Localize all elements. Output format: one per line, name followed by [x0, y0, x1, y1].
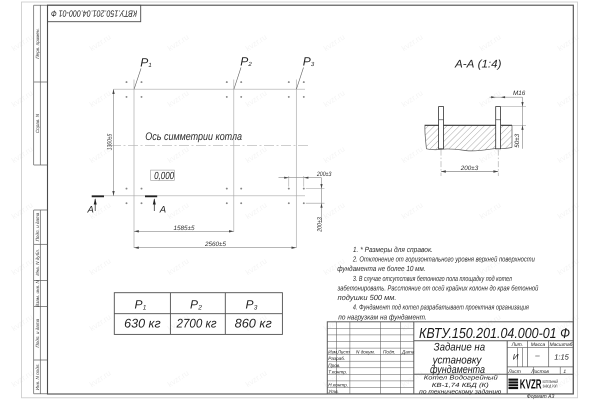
svg-text:забетонировать. Расстояние от: забетонировать. Расстояние от осей крайн…: [337, 283, 539, 292]
svg-text:3. В случае отсутствия бетонно: 3. В случае отсутствия бетонного пола пл…: [353, 274, 513, 283]
svg-text:2: 2: [247, 61, 252, 68]
svg-text:Разраб.: Разраб.: [328, 356, 345, 361]
svg-text:Формат А3: Формат А3: [527, 394, 555, 400]
svg-text:КВТУ.150.201.04.000-01 Ф: КВТУ.150.201.04.000-01 Ф: [419, 326, 570, 342]
svg-text:P: P: [140, 55, 148, 69]
svg-text:Подп. и дата: Подп. и дата: [35, 212, 40, 241]
svg-text:P: P: [135, 297, 143, 311]
svg-text:Дата: Дата: [401, 349, 415, 354]
svg-text:1360±5: 1360±5: [107, 133, 114, 150]
svg-text:ЗАВОД РЭП: ЗАВОД РЭП: [543, 384, 558, 389]
svg-text:Утв.: Утв.: [328, 389, 339, 394]
svg-text:фундамента: фундамента: [430, 364, 485, 376]
svg-text:И: И: [513, 353, 519, 362]
svg-text:Лит.: Лит.: [511, 342, 523, 348]
svg-text:Н.контр.: Н.контр.: [328, 382, 348, 387]
svg-text:1. * Размеры для справок.: 1. * Размеры для справок.: [353, 245, 433, 254]
svg-text:–: –: [534, 351, 540, 360]
svg-text:Справ. N: Справ. N: [35, 113, 40, 133]
svg-text:860 кг: 860 кг: [235, 316, 272, 330]
svg-text:3: 3: [254, 305, 258, 312]
svg-text:P: P: [246, 297, 254, 311]
svg-text:КВ-1,74 КБД (К): КВ-1,74 КБД (К): [432, 382, 489, 389]
svg-text:2: 2: [197, 305, 202, 312]
svg-text:1:15: 1:15: [554, 353, 569, 362]
svg-text:по нагрузкам на фундамент.: по нагрузкам на фундамент.: [338, 312, 426, 321]
svg-text:Взам. инв. N: Взам. инв. N: [35, 279, 40, 306]
svg-text:P: P: [240, 55, 248, 69]
svg-text:Ось симметрии котла: Ось симметрии котла: [145, 131, 242, 143]
svg-text:4. Фундамент под котел разраба: 4. Фундамент под котел разрабатывает про…: [353, 303, 529, 312]
svg-text:фундамента не более 10 мм.: фундамента не более 10 мм.: [337, 264, 426, 273]
svg-text:200±3: 200±3: [316, 217, 323, 233]
svg-text:KVZR: KVZR: [520, 376, 542, 391]
svg-text:200±3: 200±3: [316, 171, 332, 178]
svg-text:А-А (1:4): А-А (1:4): [454, 58, 502, 70]
svg-text:2560±5: 2560±5: [204, 241, 226, 248]
svg-text:2. Отклонение от горизонтально: 2. Отклонение от горизонтального уровня …: [352, 255, 535, 264]
svg-text:0,000: 0,000: [154, 171, 174, 182]
svg-text:200±3: 200±3: [460, 165, 479, 172]
svg-text:P: P: [303, 55, 311, 69]
svg-text:Подп.: Подп.: [383, 349, 395, 354]
svg-text:по техническому заданию: по техническому заданию: [419, 388, 502, 395]
svg-text:1: 1: [563, 369, 566, 375]
svg-text:P: P: [190, 297, 198, 311]
svg-text:2700 кг: 2700 кг: [176, 316, 217, 330]
svg-text:Масштаб: Масштаб: [550, 342, 573, 348]
svg-text:A: A: [159, 205, 166, 216]
svg-text:подушки 500 мм.: подушки 500 мм.: [338, 293, 397, 302]
svg-text:М16: М16: [513, 90, 526, 97]
svg-text:Подп. и дата: Подп. и дата: [35, 318, 40, 347]
svg-text:630 кг: 630 кг: [124, 316, 161, 330]
svg-text:50±3: 50±3: [514, 133, 521, 147]
svg-text:Лист: Лист: [507, 369, 521, 375]
svg-text:Перв. примен.: Перв. примен.: [35, 28, 40, 59]
svg-text:КВТУ.150.201.04.000-01 Ф: КВТУ.150.201.04.000-01 Ф: [51, 9, 137, 19]
svg-text:Инв. N дубл.: Инв. N дубл.: [35, 249, 40, 276]
svg-text:1: 1: [143, 305, 147, 312]
svg-text:A: A: [87, 205, 94, 216]
svg-text:Т.контр.: Т.контр.: [328, 369, 347, 374]
svg-text:Лист: Лист: [337, 349, 350, 354]
svg-text:Инв. N подл.: Инв. N подл.: [35, 363, 40, 390]
svg-text:Листов: Листов: [530, 369, 549, 375]
svg-text:1585±5: 1585±5: [174, 225, 195, 232]
svg-text:Пров.: Пров.: [328, 363, 340, 368]
svg-text:1: 1: [148, 62, 151, 69]
svg-text:N докум.: N докум.: [356, 349, 375, 354]
svg-text:Масса: Масса: [531, 342, 546, 348]
svg-text:Задание на: Задание на: [434, 342, 486, 354]
svg-text:Котел Водогрейный: Котел Водогрейный: [424, 375, 499, 382]
